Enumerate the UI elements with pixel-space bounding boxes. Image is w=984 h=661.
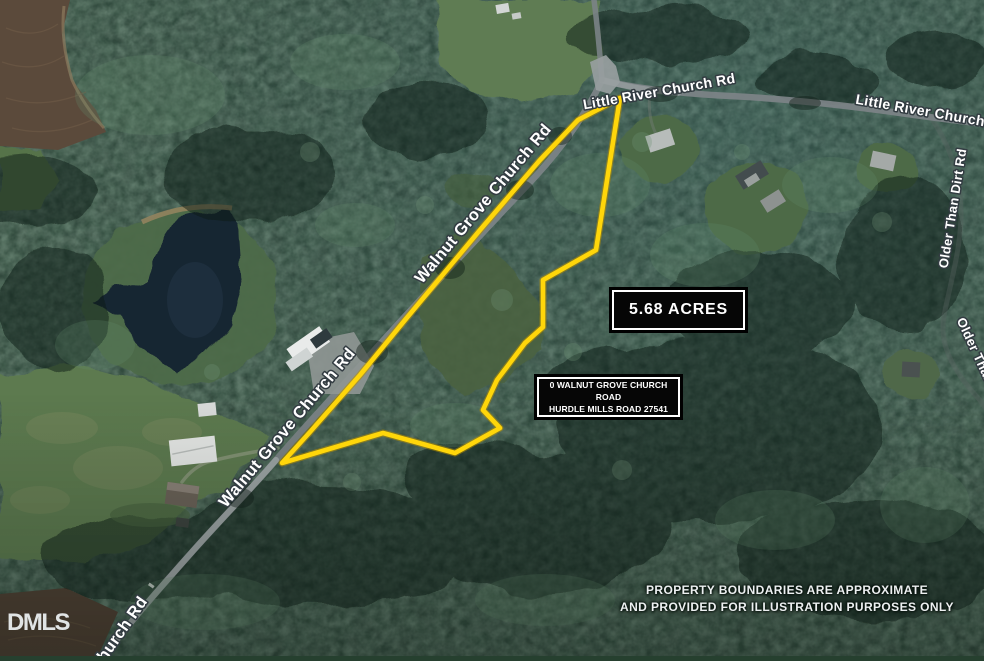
disclaimer-text: PROPERTY BOUNDARIES ARE APPROXIMATE AND … bbox=[590, 582, 984, 616]
disclaimer-line-2: AND PROVIDED FOR ILLUSTRATION PURPOSES O… bbox=[590, 599, 984, 616]
acreage-label: 5.68 ACRES bbox=[629, 301, 728, 319]
acreage-callout: 5.68 ACRES bbox=[612, 290, 745, 330]
property-aerial-map-page: { "acres_box": { "label": "5.68 ACRES" }… bbox=[0, 0, 984, 656]
disclaimer-line-1: PROPERTY BOUNDARIES ARE APPROXIMATE bbox=[590, 582, 984, 599]
satellite-map-canvas: Walnut Grove Church Rd Walnut Grove Chur… bbox=[0, 0, 984, 656]
address-callout: 0 WALNUT GROVE CHURCH ROAD HURDLE MILLS … bbox=[537, 377, 680, 417]
address-line-2: HURDLE MILLS ROAD 27541 bbox=[549, 403, 668, 415]
satellite-map: Walnut Grove Church Rd Walnut Grove Chur… bbox=[0, 0, 984, 656]
watermark-dmls: DMLS bbox=[7, 609, 69, 637]
address-line-1: 0 WALNUT GROVE CHURCH ROAD bbox=[539, 379, 678, 403]
bottom-vignette bbox=[0, 0, 984, 656]
